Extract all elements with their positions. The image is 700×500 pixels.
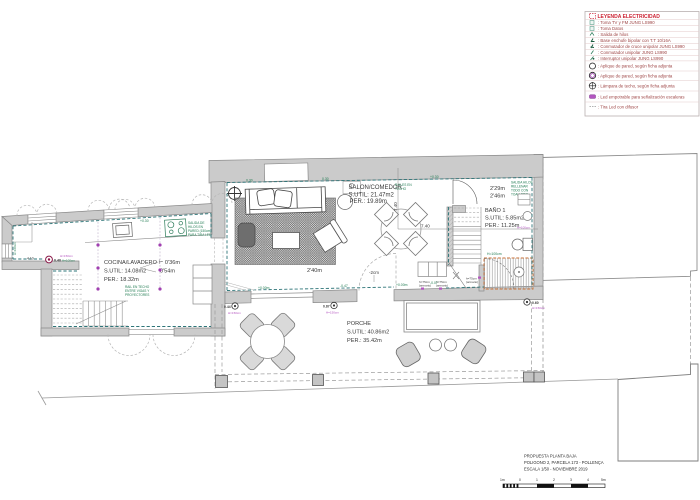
svg-text:S.UTIL: 40.86m2: S.UTIL: 40.86m2 — [347, 330, 389, 336]
svg-text:4: 4 — [587, 478, 589, 482]
svg-text:: Toma TV y FM JUNG LS990: : Toma TV y FM JUNG LS990 — [598, 20, 655, 25]
svg-text:0.30: 0.30 — [322, 177, 329, 181]
svg-text:(armario): (armario) — [466, 280, 478, 284]
svg-text:: Conmutador de cruce unipolar: : Conmutador de cruce unipolar JUNG LS99… — [598, 44, 685, 49]
svg-text:BAÑO 1: BAÑO 1 — [485, 207, 506, 214]
svg-text:0: 0 — [519, 478, 521, 482]
svg-text:5m: 5m — [601, 478, 606, 482]
svg-text:PORCHE: PORCHE — [347, 321, 371, 327]
svg-text:3: 3 — [570, 478, 572, 482]
svg-text:+0.00m: +0.00m — [258, 286, 270, 290]
svg-text:(armario): (armario) — [436, 284, 448, 288]
svg-text:0.44: 0.44 — [224, 305, 231, 309]
svg-text:H=150cm: H=150cm — [60, 254, 73, 258]
svg-text:7.40: 7.40 — [421, 224, 430, 229]
svg-text:-0.07: -0.07 — [430, 281, 438, 285]
svg-text:PARA TIRA LED: PARA TIRA LED — [188, 233, 212, 237]
svg-text:2'40m: 2'40m — [307, 268, 322, 274]
svg-text:7.40: 7.40 — [393, 202, 398, 211]
svg-text:H=100cm: H=100cm — [13, 242, 17, 255]
svg-text:ESCALA 1/50 - NOVIEMBRE 2019: ESCALA 1/50 - NOVIEMBRE 2019 — [524, 467, 588, 472]
svg-text:0.30: 0.30 — [246, 179, 253, 183]
svg-text:COCINA/LAVADERO ⊢ 0'36m: COCINA/LAVADERO ⊢ 0'36m — [104, 259, 180, 266]
svg-text:2: 2 — [553, 478, 555, 482]
svg-text:PROYECTORES: PROYECTORES — [125, 293, 149, 297]
svg-text:-0.47: -0.47 — [340, 284, 348, 288]
svg-text:PROPUESTA PLANTA BAJA: PROPUESTA PLANTA BAJA — [524, 454, 577, 459]
svg-text:4.10: 4.10 — [27, 257, 34, 261]
svg-text:H=100cm: H=100cm — [487, 252, 502, 256]
svg-text:2'46m: 2'46m — [490, 194, 505, 200]
svg-text:: Conmutador unipolar JUNG LS9: : Conmutador unipolar JUNG LS990 — [598, 50, 668, 55]
svg-text:: Toma Datos: : Toma Datos — [598, 26, 623, 31]
svg-text:0.87: 0.87 — [323, 305, 330, 309]
svg-text:: Lámpara de techo, según fich: : Lámpara de techo, según ficha adjunta — [598, 84, 675, 89]
svg-text:: Aplique de pared, según fich: : Aplique de pared, según ficha adjunta — [598, 64, 673, 69]
svg-text:H=150cm: H=150cm — [326, 311, 339, 315]
svg-text:H=100cm: H=100cm — [62, 259, 75, 263]
svg-text:: Interruptor unipolar JUNG LS: : Interruptor unipolar JUNG LS990 — [598, 56, 664, 61]
svg-text:: Salida de hilos: : Salida de hilos — [598, 32, 628, 37]
svg-text:PER.: 18.32m: PER.: 18.32m — [104, 277, 139, 283]
svg-text:S.UTIL: 21.47m2: S.UTIL: 21.47m2 — [349, 192, 395, 198]
svg-text:2'29m: 2'29m — [490, 186, 505, 192]
svg-text:: Tira Led con difusor: : Tira Led con difusor — [598, 105, 639, 110]
svg-text:S.UTIL: 14.08m2: S.UTIL: 14.08m2 — [104, 269, 146, 275]
svg-text:PER.: 35.42m: PER.: 35.42m — [347, 338, 382, 344]
svg-text:0'54m: 0'54m — [160, 269, 175, 275]
svg-text:S.UTIL: 5.85m2: S.UTIL: 5.85m2 — [485, 216, 524, 222]
svg-text:0.60: 0.60 — [532, 301, 539, 305]
svg-text:+0.00m: +0.00m — [396, 283, 408, 287]
svg-text:H=150cm: H=150cm — [228, 311, 241, 315]
svg-text:: Led empotrable para señaliza: : Led empotrable para señalización escal… — [598, 95, 684, 100]
svg-text:0.40: 0.40 — [54, 259, 61, 263]
svg-text:: Base enchufe bipolar con T.T: : Base enchufe bipolar con T.T 10/16A — [598, 38, 671, 43]
svg-text:PER.: 11.25m: PER.: 11.25m — [485, 223, 520, 229]
svg-text:+0.30: +0.30 — [140, 219, 149, 223]
svg-text:+0.30: +0.30 — [430, 175, 439, 179]
svg-text:TECHO: TECHO — [395, 187, 407, 191]
svg-text:1: 1 — [536, 478, 538, 482]
svg-text:H=150cm: H=150cm — [532, 306, 545, 310]
svg-text:POLIGONO 2, PARCELA 173 - POLL: POLIGONO 2, PARCELA 173 - POLLENÇA — [524, 460, 604, 465]
svg-text:PER.: 19.89m: PER.: 19.89m — [350, 199, 387, 205]
svg-text:1m: 1m — [500, 478, 505, 482]
svg-text:: Aplique de pared, según fich: : Aplique de pared, según ficha adjunta — [598, 74, 673, 79]
svg-text:-2cm: -2cm — [369, 270, 379, 275]
